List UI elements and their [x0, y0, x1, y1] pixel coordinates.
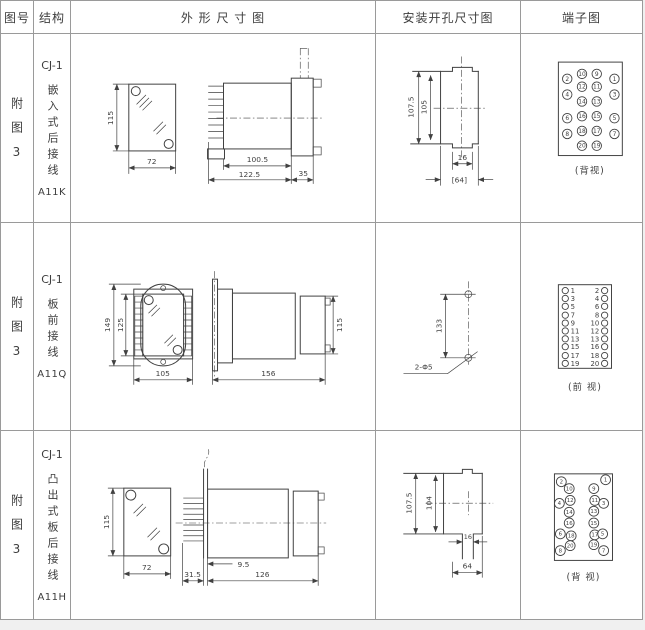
terminal-row: 1112 [562, 327, 608, 335]
outline-cell-2: 149 125 105 156 115 [71, 223, 376, 431]
view-label: (背视) [575, 164, 605, 176]
header-outline: 外 形 尺 寸 图 [71, 1, 376, 34]
dim-height: 115 [106, 110, 115, 125]
svg-text:9: 9 [571, 319, 575, 327]
terminal: 16 [564, 518, 574, 528]
terminal-row: 1920 [562, 359, 608, 367]
svg-text:15: 15 [571, 343, 580, 351]
svg-text:1: 1 [604, 478, 607, 484]
terminal-drawing-a11h: 2 4 6 8 10 12 14 16 18 20 9 11 13 15 17 … [521, 431, 642, 619]
dim-outer-height: 107.5 [405, 492, 414, 514]
dim-height: 149 [103, 317, 112, 332]
header-figure: 图号 [1, 1, 34, 34]
svg-text:16: 16 [566, 521, 573, 527]
figure-cell-2: 附图3 [1, 223, 34, 431]
side-view: 156 115 [213, 271, 345, 385]
mounting-drawing-a11k: 107.5 105 16 [64] [376, 34, 520, 223]
front-view: 115 72 [102, 488, 171, 579]
terminal: 2 [556, 477, 566, 487]
header-structure: 结构 [34, 1, 71, 34]
svg-text:4: 4 [558, 501, 562, 507]
terminal: 19 [592, 140, 601, 149]
figure-number: 附图3 [9, 284, 26, 370]
outline-cell-1: 115 72 100.5 122.5 35 [71, 34, 376, 223]
svg-text:1: 1 [571, 287, 575, 295]
terminal: 20 [577, 140, 586, 149]
svg-text:2: 2 [595, 287, 599, 295]
model-name: CJ-1 [41, 59, 63, 72]
terminal: 15 [592, 111, 601, 120]
terminal: 17 [592, 126, 601, 135]
spec-table: 图号 结构 外 形 尺 寸 图 安装开孔尺寸图 端子图 附图3 CJ-1 嵌入式… [1, 1, 642, 619]
view-label: (前 视) [568, 380, 602, 392]
dim-body-height: 115 [335, 317, 344, 332]
svg-text:4: 4 [565, 92, 569, 98]
svg-text:5: 5 [601, 532, 604, 538]
dim-panel-width: 64 [463, 562, 473, 571]
svg-text:14: 14 [578, 99, 586, 105]
svg-text:9: 9 [595, 71, 599, 77]
terminal-cell-3: 2 4 6 8 10 12 14 16 18 20 9 11 13 15 17 … [521, 431, 642, 619]
terminal-cell-1: 2 4 6 8 10 12 14 16 18 20 9 11 13 15 17 … [521, 34, 642, 223]
terminal-row: 56 [562, 302, 608, 310]
front-view: 115 72 [106, 84, 176, 174]
terminal: 3 [610, 89, 619, 98]
svg-text:19: 19 [593, 143, 601, 149]
structure-cell-1: CJ-1 嵌入式后接线 A11K [34, 34, 71, 223]
svg-text:3: 3 [613, 92, 617, 98]
terminal: 5 [598, 529, 608, 539]
terminal-row: 910 [562, 319, 608, 327]
svg-text:18: 18 [590, 351, 599, 359]
svg-text:11: 11 [571, 327, 580, 335]
terminal: 11 [590, 495, 600, 505]
svg-text:18: 18 [568, 534, 575, 540]
svg-text:12: 12 [590, 327, 599, 335]
view-label: (背 视) [567, 571, 601, 583]
structure-desc: 嵌入式后接线 [44, 79, 60, 180]
terminal: 13 [589, 506, 599, 516]
mounting-drawing-a11h: 107.5 104 16 64 [376, 431, 520, 619]
terminal: 3 [599, 498, 609, 508]
terminal: 9 [589, 484, 599, 494]
dim-pin-depth: 31.5 [184, 570, 201, 579]
structure-cell-2: CJ-1 板前接线 A11Q [34, 223, 71, 431]
terminal: 9 [592, 69, 601, 78]
svg-text:13: 13 [571, 335, 580, 343]
svg-text:3: 3 [571, 294, 575, 302]
svg-text:16: 16 [578, 114, 586, 120]
model-name: CJ-1 [41, 273, 63, 286]
svg-text:18: 18 [578, 128, 586, 134]
terminal-row: 1718 [562, 351, 608, 359]
svg-text:17: 17 [593, 128, 601, 134]
terminal: 16 [577, 111, 586, 120]
dim-hole-spacing: 133 [435, 318, 444, 332]
dim-depth: 126 [255, 570, 270, 579]
terminal: 12 [565, 495, 575, 505]
terminal: 4 [554, 498, 564, 508]
terminal: 13 [592, 96, 601, 105]
header-structure-label: 结构 [39, 9, 65, 26]
svg-text:20: 20 [578, 143, 586, 149]
svg-text:6: 6 [595, 302, 599, 310]
terminal: 6 [555, 529, 565, 539]
outline-cell-3: 115 72 9.5 31.5 126 [71, 431, 376, 619]
svg-text:9: 9 [592, 486, 596, 492]
svg-text:7: 7 [602, 548, 605, 554]
terminal: 19 [589, 540, 599, 550]
dim-slot-width: 16 [458, 152, 468, 161]
terminal: 6 [563, 113, 572, 122]
terminal-pins-rear: 2 4 6 8 10 12 14 16 18 20 9 11 13 15 17 … [563, 69, 620, 150]
svg-text:13: 13 [590, 509, 597, 515]
terminal: 15 [589, 518, 599, 528]
dim-slot-width: 16 [464, 533, 472, 541]
svg-text:19: 19 [571, 359, 580, 367]
outline-drawing-a11q: 149 125 105 156 115 [71, 223, 375, 431]
terminal: 4 [563, 89, 572, 98]
mounting-cell-3: 107.5 104 16 64 [376, 431, 521, 619]
svg-text:6: 6 [559, 532, 563, 538]
dim-width: 105 [156, 368, 171, 377]
figure-cell-3: 附图3 [1, 431, 34, 619]
model-code: A11K [38, 187, 66, 198]
side-view: 100.5 122.5 35 [208, 48, 325, 184]
svg-text:15: 15 [593, 114, 601, 120]
terminal: 1 [610, 74, 619, 83]
figure-number: 附图3 [9, 85, 26, 171]
terminal: 14 [564, 507, 574, 517]
dim-depth: 100.5 [247, 154, 269, 163]
svg-text:20: 20 [567, 543, 574, 549]
terminal: 18 [566, 531, 576, 541]
svg-text:6: 6 [565, 116, 569, 122]
terminal: 11 [592, 81, 601, 90]
dim-panel-width: [64] [452, 175, 467, 184]
svg-text:4: 4 [595, 294, 599, 302]
svg-text:11: 11 [593, 84, 601, 90]
header-figure-label: 图号 [4, 9, 30, 26]
dim-total-depth: 122.5 [239, 169, 261, 178]
dim-height: 115 [102, 515, 111, 530]
terminal: 8 [555, 546, 565, 556]
mounting-cell-2: 133 2-Φ5 [376, 223, 521, 431]
svg-text:19: 19 [590, 542, 597, 548]
svg-text:13: 13 [593, 99, 601, 105]
figure-cell-1: 附图3 [1, 34, 34, 223]
terminal-strip-front: 12 34 56 78 910 1112 1313 1516 1718 1920 [562, 287, 608, 368]
structure-desc: 凸出式板后接线 [44, 468, 60, 585]
dim-inner-height: 105 [420, 99, 429, 113]
mounting-cell-1: 107.5 105 16 [64] [376, 34, 521, 223]
holes-label: 2-Φ5 [415, 362, 433, 371]
svg-text:3: 3 [602, 501, 605, 507]
svg-text:20: 20 [590, 359, 599, 367]
outline-drawing-a11k: 115 72 100.5 122.5 35 [71, 34, 375, 223]
terminal-row: 78 [562, 311, 608, 319]
front-view: 149 125 105 [103, 284, 193, 385]
terminal: 7 [610, 129, 619, 138]
dim-outer-height: 107.5 [407, 96, 416, 118]
terminal: 10 [564, 484, 574, 494]
svg-text:8: 8 [565, 131, 569, 137]
model-name: CJ-1 [41, 448, 63, 461]
svg-text:2: 2 [560, 479, 563, 485]
terminal: 14 [577, 96, 586, 105]
dim-width: 72 [147, 156, 157, 165]
terminal: 5 [610, 113, 619, 122]
terminal: 10 [577, 69, 586, 78]
terminal: 2 [563, 74, 572, 83]
terminal-pins-rear: 2 4 6 8 10 12 14 16 18 20 9 11 13 15 17 … [554, 475, 610, 556]
model-code: A11Q [37, 369, 66, 380]
svg-text:10: 10 [566, 486, 573, 492]
dim-flange: 35 [298, 168, 308, 177]
dim-depth: 156 [261, 368, 276, 377]
structure-cell-3: CJ-1 凸出式板后接线 A11H [34, 431, 71, 619]
svg-text:5: 5 [613, 116, 617, 122]
dim-offset: 9.5 [237, 560, 249, 569]
svg-text:16: 16 [590, 343, 599, 351]
svg-text:14: 14 [566, 510, 573, 516]
terminal: 12 [577, 81, 586, 90]
model-code: A11H [37, 592, 66, 603]
header-mounting: 安装开孔尺寸图 [376, 1, 521, 34]
svg-text:7: 7 [613, 131, 617, 137]
svg-text:10: 10 [578, 71, 586, 77]
mounting-drawing-a11q: 133 2-Φ5 [376, 223, 520, 431]
svg-text:17: 17 [571, 351, 580, 359]
header-outline-label: 外 形 尺 寸 图 [181, 9, 265, 26]
svg-text:15: 15 [590, 521, 597, 527]
terminal: 1 [601, 475, 611, 485]
terminal: 18 [577, 126, 586, 135]
svg-text:11: 11 [591, 498, 598, 504]
structure-desc: 板前接线 [44, 293, 60, 362]
terminal-drawing-a11q: 12 34 56 78 910 1112 1313 1516 1718 1920… [521, 223, 642, 431]
terminal-drawing-a11k: 2 4 6 8 10 12 14 16 18 20 9 11 13 15 17 … [521, 34, 642, 223]
terminal: 7 [599, 546, 609, 556]
svg-text:10: 10 [590, 319, 599, 327]
terminal-row: 1313 [562, 335, 608, 343]
svg-text:13: 13 [590, 335, 599, 343]
svg-text:2: 2 [565, 76, 569, 82]
svg-text:7: 7 [571, 311, 575, 319]
figure-number: 附图3 [9, 482, 26, 568]
header-terminal: 端子图 [521, 1, 642, 34]
terminal: 20 [565, 541, 575, 551]
dim-inner-height: 125 [116, 317, 125, 332]
svg-text:5: 5 [571, 302, 575, 310]
spec-sheet: 图号 结构 外 形 尺 寸 图 安装开孔尺寸图 端子图 附图3 CJ-1 嵌入式… [0, 0, 643, 620]
dim-width: 72 [142, 563, 152, 572]
svg-text:1: 1 [613, 76, 617, 82]
dim-inner-height: 104 [425, 496, 434, 510]
side-view: 9.5 31.5 126 [176, 449, 327, 586]
terminal-cell-2: 12 34 56 78 910 1112 1313 1516 1718 1920… [521, 223, 642, 431]
svg-text:12: 12 [567, 498, 574, 504]
header-mounting-label: 安装开孔尺寸图 [402, 9, 493, 26]
svg-text:17: 17 [591, 533, 598, 539]
header-terminal-label: 端子图 [562, 9, 601, 26]
svg-text:8: 8 [559, 548, 563, 554]
terminal-row: 34 [562, 294, 608, 302]
svg-text:8: 8 [595, 311, 599, 319]
terminal-row: 12 [562, 287, 608, 295]
terminal-row: 1516 [562, 343, 608, 351]
outline-drawing-a11h: 115 72 9.5 31.5 126 [71, 431, 375, 619]
terminal: 8 [563, 129, 572, 138]
svg-text:12: 12 [578, 84, 586, 90]
